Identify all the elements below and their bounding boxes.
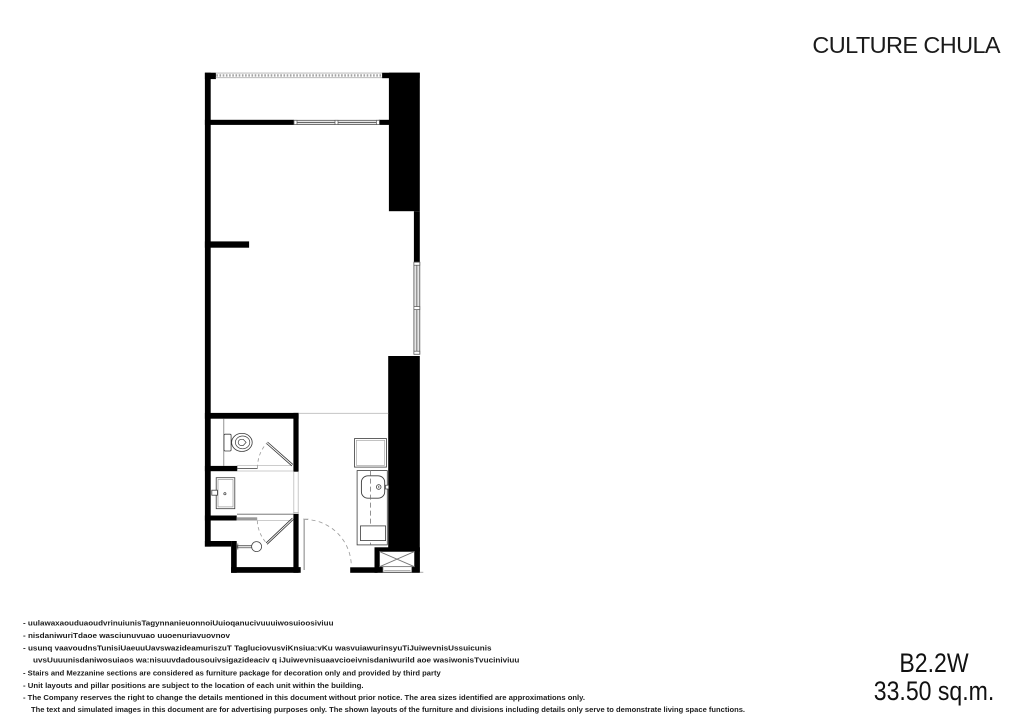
svg-text:- Unit layouts and pillar posi: - Unit layouts and pillar positions are … (23, 681, 364, 690)
svg-text:- usunq vaavoudnsTunisiUaeuuUa: - usunq vaavoudnsTunisiUaeuuUavswazideam… (23, 643, 492, 652)
svg-text:- Stairs and Mezzanine section: - Stairs and Mezzanine sections are cons… (23, 669, 441, 678)
svg-text:- uulawaxaouduaoudvrinuiunisTa: - uulawaxaouduaoudvrinuiunisTagynnanieuo… (23, 619, 334, 628)
svg-text:- nisdaniwuriTdaoe wasciunuvua: - nisdaniwuriTdaoe wasciunuvuao uuoenuri… (23, 631, 231, 640)
svg-text:- The Company reserves the rig: - The Company reserves the right to chan… (23, 693, 585, 702)
svg-text:The text and simulated images: The text and simulated images in this do… (31, 705, 745, 714)
svg-text:uvsUuuunisdaniwosuiaos wa:nisu: uvsUuuunisdaniwosuiaos wa:nisuuvdadousou… (33, 656, 520, 665)
